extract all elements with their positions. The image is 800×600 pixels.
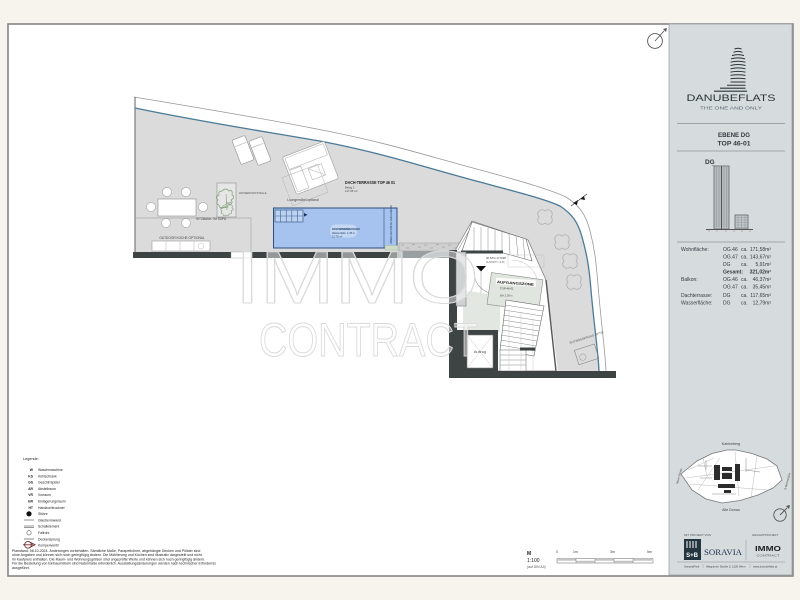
svg-text:Glastrennwand: Glastrennwand [38, 518, 61, 522]
svg-text:Deckensprung: Deckensprung [38, 537, 60, 541]
svg-text:KS: KS [28, 474, 33, 478]
svg-text:1:100: 1:100 [527, 558, 540, 564]
svg-text:SITZBANK 7M SOFA: SITZBANK 7M SOFA [196, 217, 227, 221]
svg-text:IMMO: IMMO [755, 546, 782, 553]
svg-text:Für die Bestellung von Einbaum: Für die Bestellung von Einbaumöbeln sind… [12, 562, 216, 566]
svg-text:0: 0 [556, 550, 558, 554]
svg-text:EBENE DG: EBENE DG [718, 132, 750, 139]
svg-text:Fallrohr: Fallrohr [38, 531, 50, 535]
svg-text:ca.: ca. [741, 301, 748, 307]
svg-text:BH 2,50m: BH 2,50m [500, 294, 513, 298]
svg-text:DG: DG [705, 159, 715, 166]
svg-text:DACH-TERRASSE TOP 46 01: DACH-TERRASSE TOP 46 01 [345, 180, 395, 185]
svg-text:WASSERZAPFSTELLE: WASSERZAPFSTELLE [239, 191, 267, 195]
svg-text:DANUBEFLATS: DANUBEFLATS [687, 93, 776, 103]
svg-text:S+B: S+B [686, 553, 699, 559]
svg-text:3m: 3m [610, 550, 615, 554]
svg-text:SORAVIA: SORAVIA [704, 548, 742, 557]
svg-text:AR: AR [28, 487, 33, 491]
svg-text:IMMO: IMMO [235, 236, 479, 319]
svg-text:Vorraum: Vorraum [38, 493, 51, 497]
svg-text:ca.: ca. [741, 277, 748, 283]
svg-text:30 STG 17,5/28: 30 STG 17,5/28 [486, 256, 506, 260]
svg-text:12,79m²: 12,79m² [753, 301, 772, 307]
svg-text:OG.47: OG.47 [723, 255, 738, 261]
svg-text:5,91m²: 5,91m² [755, 262, 771, 268]
svg-text:M: M [527, 551, 531, 557]
svg-text:ca.: ca. [741, 293, 748, 299]
svg-text:Legende:: Legende: [23, 457, 39, 461]
svg-text:MIT PROJEKT VON: MIT PROJEKT VON [684, 533, 711, 537]
svg-text:TOP 46-01: TOP 46-01 [718, 141, 751, 148]
svg-text:SCHWIMMBECKEN: SCHWIMMBECKEN [332, 227, 360, 231]
svg-text:Einlagerungsraum: Einlagerungsraum [38, 500, 66, 504]
svg-text:Alte Donau: Alte Donau [722, 508, 740, 512]
svg-text:Gesamt:: Gesamt: [723, 270, 743, 276]
svg-text:Waschmaschine: Waschmaschine [38, 468, 63, 472]
svg-text:35,45m²: 35,45m² [753, 285, 772, 291]
svg-text:www.danubeflats.at: www.danubeflats.at [753, 565, 777, 569]
svg-text:ca.: ca. [741, 247, 748, 253]
svg-text:OG.46: OG.46 [723, 277, 738, 283]
svg-text:46,37m²: 46,37m² [753, 277, 772, 283]
svg-text:321,02m²: 321,02m² [750, 270, 772, 276]
svg-text:Kahlenberg: Kahlenberg [722, 442, 740, 446]
svg-text:Wassertiefe: 1,35 m: Wassertiefe: 1,35 m [332, 231, 355, 235]
svg-text:DG: DG [723, 293, 731, 299]
svg-text:Handtuchtrockner: Handtuchtrockner [38, 506, 66, 510]
svg-text:117,65m²: 117,65m² [750, 293, 771, 299]
svg-text:Wasserfläche:: Wasserfläche: [681, 301, 713, 307]
svg-text:Geschirrspüler: Geschirrspüler [38, 481, 61, 485]
svg-text:1m: 1m [573, 550, 578, 554]
svg-text:143,67m²: 143,67m² [750, 255, 771, 261]
svg-text:GS: GS [28, 481, 34, 485]
svg-text:ca.: ca. [741, 285, 748, 291]
svg-text:DG: DG [723, 262, 731, 268]
svg-text:ausgeführt.: ausgeführt. [12, 566, 30, 570]
svg-text:THE ONE AND ONLY: THE ONE AND ONLY [700, 106, 762, 111]
svg-text:SoraviaPark: SoraviaPark [684, 565, 700, 569]
svg-text:Abstellraum: Abstellraum [38, 487, 56, 491]
svg-text:CONTRACT: CONTRACT [757, 554, 781, 558]
svg-text:171,58m²: 171,58m² [750, 247, 771, 253]
svg-text:DG: DG [723, 301, 731, 307]
svg-text:117,65 m²: 117,65 m² [345, 189, 357, 193]
svg-text:Dachterrasse:: Dachterrasse: [681, 293, 712, 299]
svg-text:GESAMTPROJEKT: GESAMTPROJEKT [752, 533, 779, 537]
svg-text:OG.46: OG.46 [723, 247, 738, 253]
svg-text:Loungemöbel optional: Loungemöbel optional [287, 198, 319, 202]
svg-text:OG.47: OG.47 [723, 285, 738, 291]
svg-text:VR: VR [28, 493, 33, 497]
svg-text:Wagramer Straße 2, 1220 Wien: Wagramer Straße 2, 1220 Wien [706, 565, 746, 569]
svg-text:Wohnfläche:: Wohnfläche: [681, 247, 709, 253]
svg-text:ER: ER [28, 500, 33, 504]
svg-text:AUSTRITT +0,00: AUSTRITT +0,00 [486, 261, 505, 264]
svg-text:ca.: ca. [741, 255, 748, 261]
svg-text:Balkon:: Balkon: [681, 277, 698, 283]
svg-text:Kühlschrank: Kühlschrank [38, 474, 57, 478]
svg-text:CONTRACT: CONTRACT [259, 313, 478, 366]
svg-text:TOP 46-01: TOP 46-01 [500, 287, 514, 291]
svg-text:OUTDOOR KÜCHE OPTIONAL: OUTDOOR KÜCHE OPTIONAL [159, 236, 205, 240]
svg-text:ca.: ca. [741, 262, 748, 268]
svg-text:Stütze: Stütze [38, 512, 48, 516]
svg-text:Schallelement: Schallelement [38, 525, 59, 529]
svg-text:5m: 5m [647, 550, 652, 554]
svg-text:(auf DIN A3): (auf DIN A3) [527, 565, 546, 569]
svg-text:Kompenventil: Kompenventil [38, 544, 59, 548]
